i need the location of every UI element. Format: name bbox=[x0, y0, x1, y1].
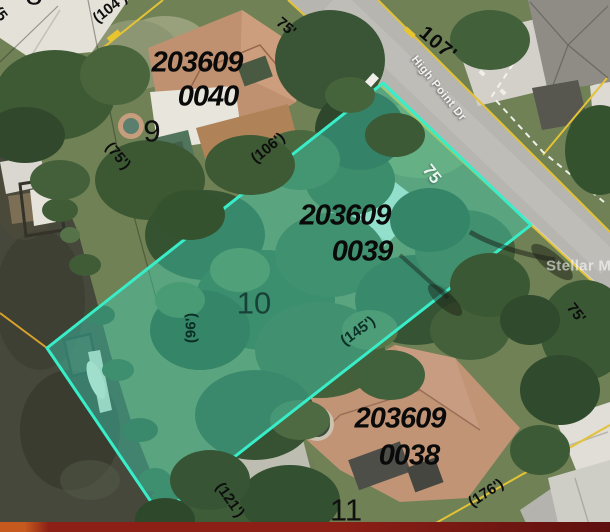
water-reflection bbox=[60, 460, 120, 500]
aerial-imagery bbox=[0, 0, 610, 532]
aerial-parcel-map: 8(5(104')75'107'High Point Dr20360900409… bbox=[0, 0, 610, 532]
bottom-bar bbox=[0, 522, 610, 532]
spa-water bbox=[123, 118, 139, 134]
